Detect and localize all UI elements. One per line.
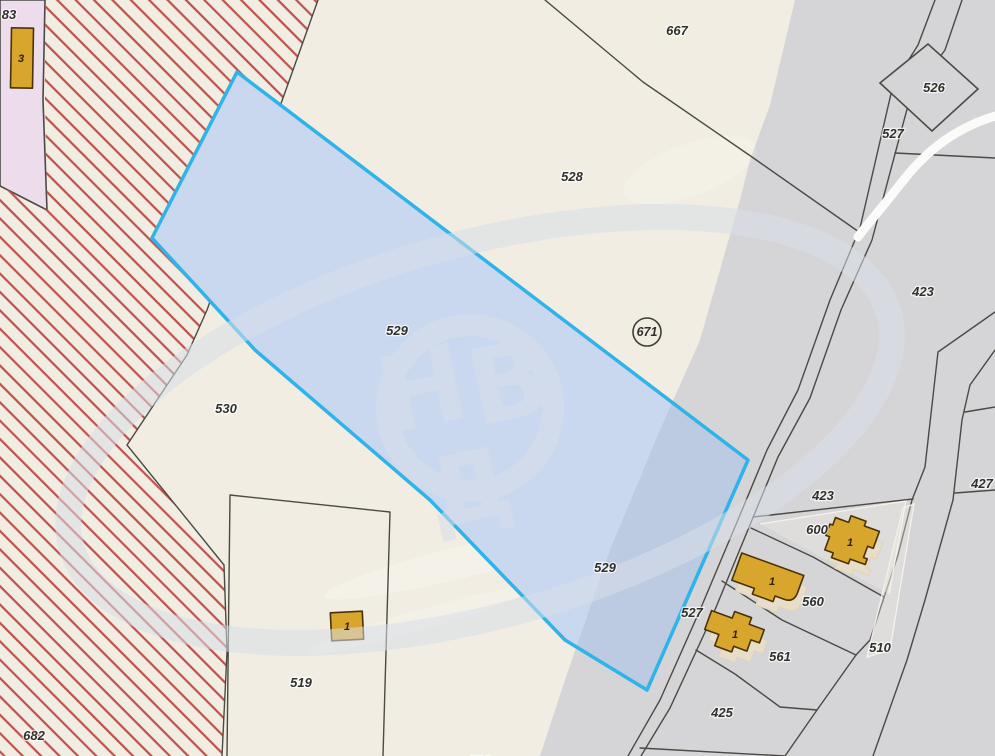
parcel-label-526: 526 [923, 80, 945, 95]
building-label-519-1: 1 [344, 621, 350, 633]
parcel-label-667: 667 [666, 23, 688, 38]
parcel-label-561: 561 [769, 649, 791, 664]
parcel-label-671: 671 [637, 325, 658, 339]
building-label-3: 3 [18, 53, 24, 65]
parcel-label-529b: 529 [594, 560, 616, 575]
parcel-label-600: 600 [806, 522, 828, 537]
parcel-label-560: 560 [802, 594, 824, 609]
parcel-label-510: 510 [869, 640, 891, 655]
building-label-561-1: 1 [732, 629, 738, 641]
parcel-label-527b: 527 [681, 605, 703, 620]
parcel-label-528: 528 [561, 169, 583, 184]
parcel-label-529: 529 [386, 323, 408, 338]
parcel-label-83: 83 [2, 7, 17, 22]
parcel-label-519: 519 [290, 675, 312, 690]
parcel-label-423: 423 [911, 284, 934, 299]
parcel-label-423b: 423 [811, 488, 834, 503]
parcel-label-527: 527 [882, 126, 904, 141]
building-label-600-1: 1 [847, 537, 853, 549]
map-viewport[interactable]: Н В Д 671 83 667 526 527 528 423 529 530… [0, 0, 995, 756]
parcel-label-682: 682 [23, 728, 45, 743]
building-label-560-1: 1 [769, 576, 775, 588]
map-canvas[interactable]: Н В Д 671 83 667 526 527 528 423 529 530… [0, 0, 995, 756]
parcel-label-425: 425 [710, 705, 733, 720]
parcel-label-530: 530 [215, 401, 237, 416]
parcel-label-427: 427 [970, 476, 993, 491]
circled-label-671: 671 [633, 318, 661, 346]
